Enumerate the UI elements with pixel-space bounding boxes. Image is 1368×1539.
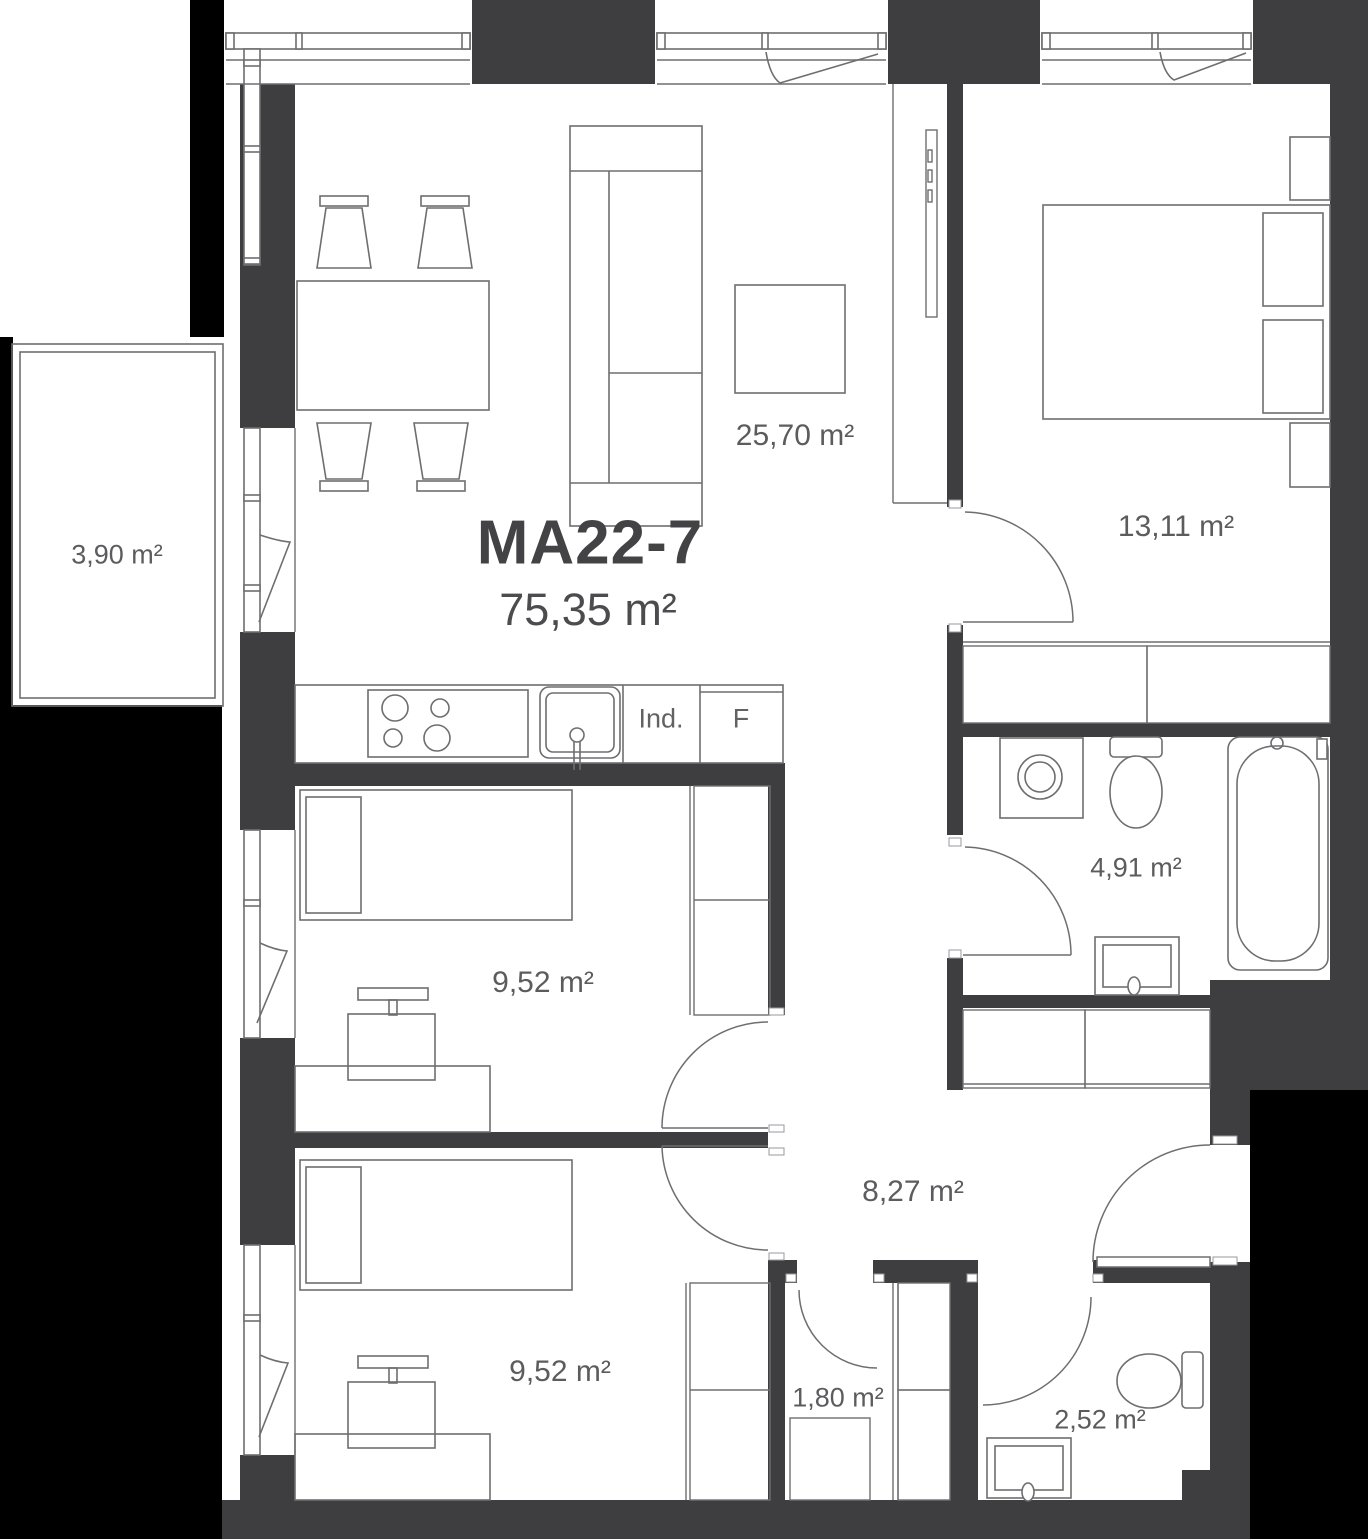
floor-plan: MA22-7 75,35 m² 25,70 m² 13,11 m² 3,90 m… xyxy=(0,0,1368,1539)
stove-icon xyxy=(368,690,528,757)
desk-room1-icon xyxy=(295,988,490,1132)
wc-sink-icon xyxy=(987,1438,1071,1501)
unit-total-area: 75,35 m² xyxy=(499,584,677,636)
washing-machine-icon xyxy=(1000,738,1083,818)
bathroom-sink-icon xyxy=(1095,937,1179,995)
coffee-table-icon xyxy=(735,285,845,393)
door-jambs xyxy=(769,500,1237,1282)
window-room1 xyxy=(244,830,287,1038)
window-bay-kitchen xyxy=(657,33,886,83)
room-label-bathroom: 4,91 m² xyxy=(1090,853,1182,884)
wardrobe-room2 xyxy=(686,1283,770,1500)
room-label-living: 25,70 m² xyxy=(736,419,854,453)
kitchen-fridge-label: F xyxy=(733,704,750,735)
room-label-wc: 2,52 m² xyxy=(1054,1405,1146,1436)
window-room2 xyxy=(244,1245,288,1455)
hallway-closet xyxy=(963,1010,1210,1088)
kitchen-induction-label: Ind. xyxy=(638,704,683,735)
room-label-room1: 9,52 m² xyxy=(492,966,594,1000)
unit-title: MA22-7 xyxy=(477,508,704,579)
room-label-bedroom: 13,11 m² xyxy=(1118,510,1234,544)
tv-icon xyxy=(926,130,937,317)
room-label-balcony: 3,90 m² xyxy=(71,540,163,571)
bed-room1-icon xyxy=(300,790,572,920)
sofa-icon xyxy=(570,126,702,526)
balcony-door xyxy=(244,428,290,632)
kitchen-sink-icon xyxy=(540,687,620,770)
desk-room2-icon xyxy=(295,1356,490,1500)
window-bay-bedroom xyxy=(1042,33,1251,80)
bed-room2-icon xyxy=(300,1160,572,1290)
bedroom-closet xyxy=(963,642,1330,723)
toilet-icon xyxy=(1110,737,1162,828)
room-label-hallway: 8,27 m² xyxy=(862,1175,964,1209)
wc-toilet-icon xyxy=(1117,1352,1203,1408)
floor-plan-drawing xyxy=(0,0,1368,1539)
dining-table-icon xyxy=(297,281,489,410)
wardrobe-room1 xyxy=(690,786,770,1015)
room-label-storage: 1,80 m² xyxy=(792,1383,884,1414)
room-label-room2: 9,52 m² xyxy=(509,1355,611,1389)
double-bed-icon xyxy=(1043,205,1330,419)
balcony-outline xyxy=(12,344,223,706)
bathtub-icon xyxy=(1228,737,1328,970)
